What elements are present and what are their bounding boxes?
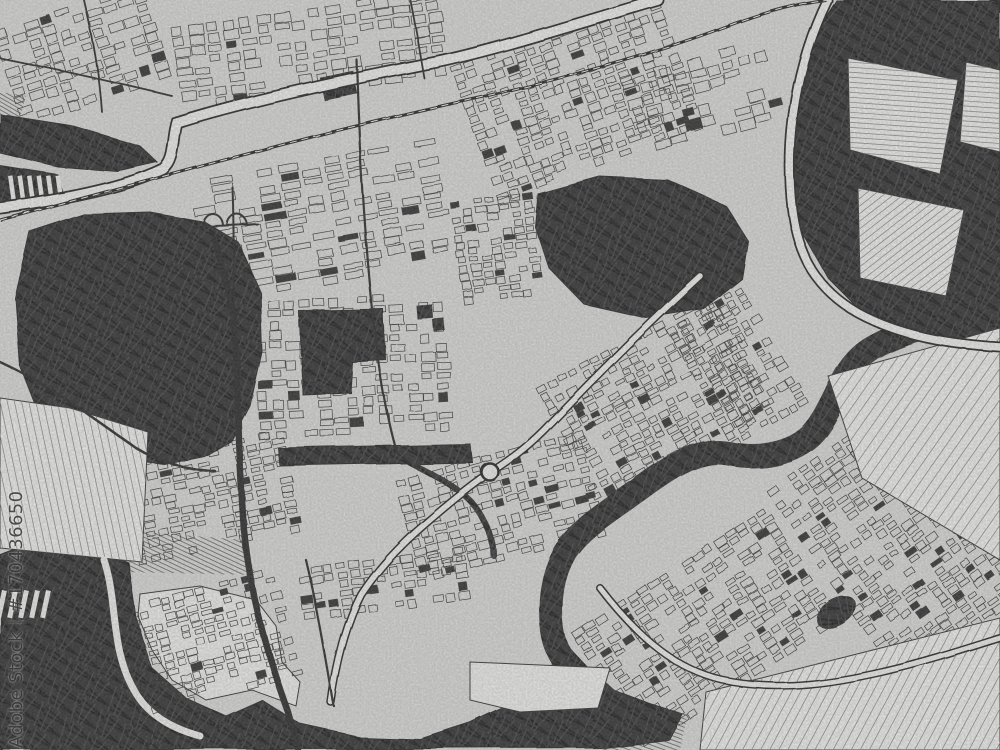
sketch-city-map (0, 0, 1000, 750)
watermark-brand: Adobe Stock (6, 631, 27, 748)
watermark-id: #170436650 (6, 491, 27, 613)
watermark-separator: | (6, 613, 27, 631)
pencil-grain-overlay (0, 0, 1000, 750)
map-screenshot: Adobe Stock|#170436650 (0, 0, 1000, 750)
stock-watermark: Adobe Stock|#170436650 (6, 498, 28, 748)
